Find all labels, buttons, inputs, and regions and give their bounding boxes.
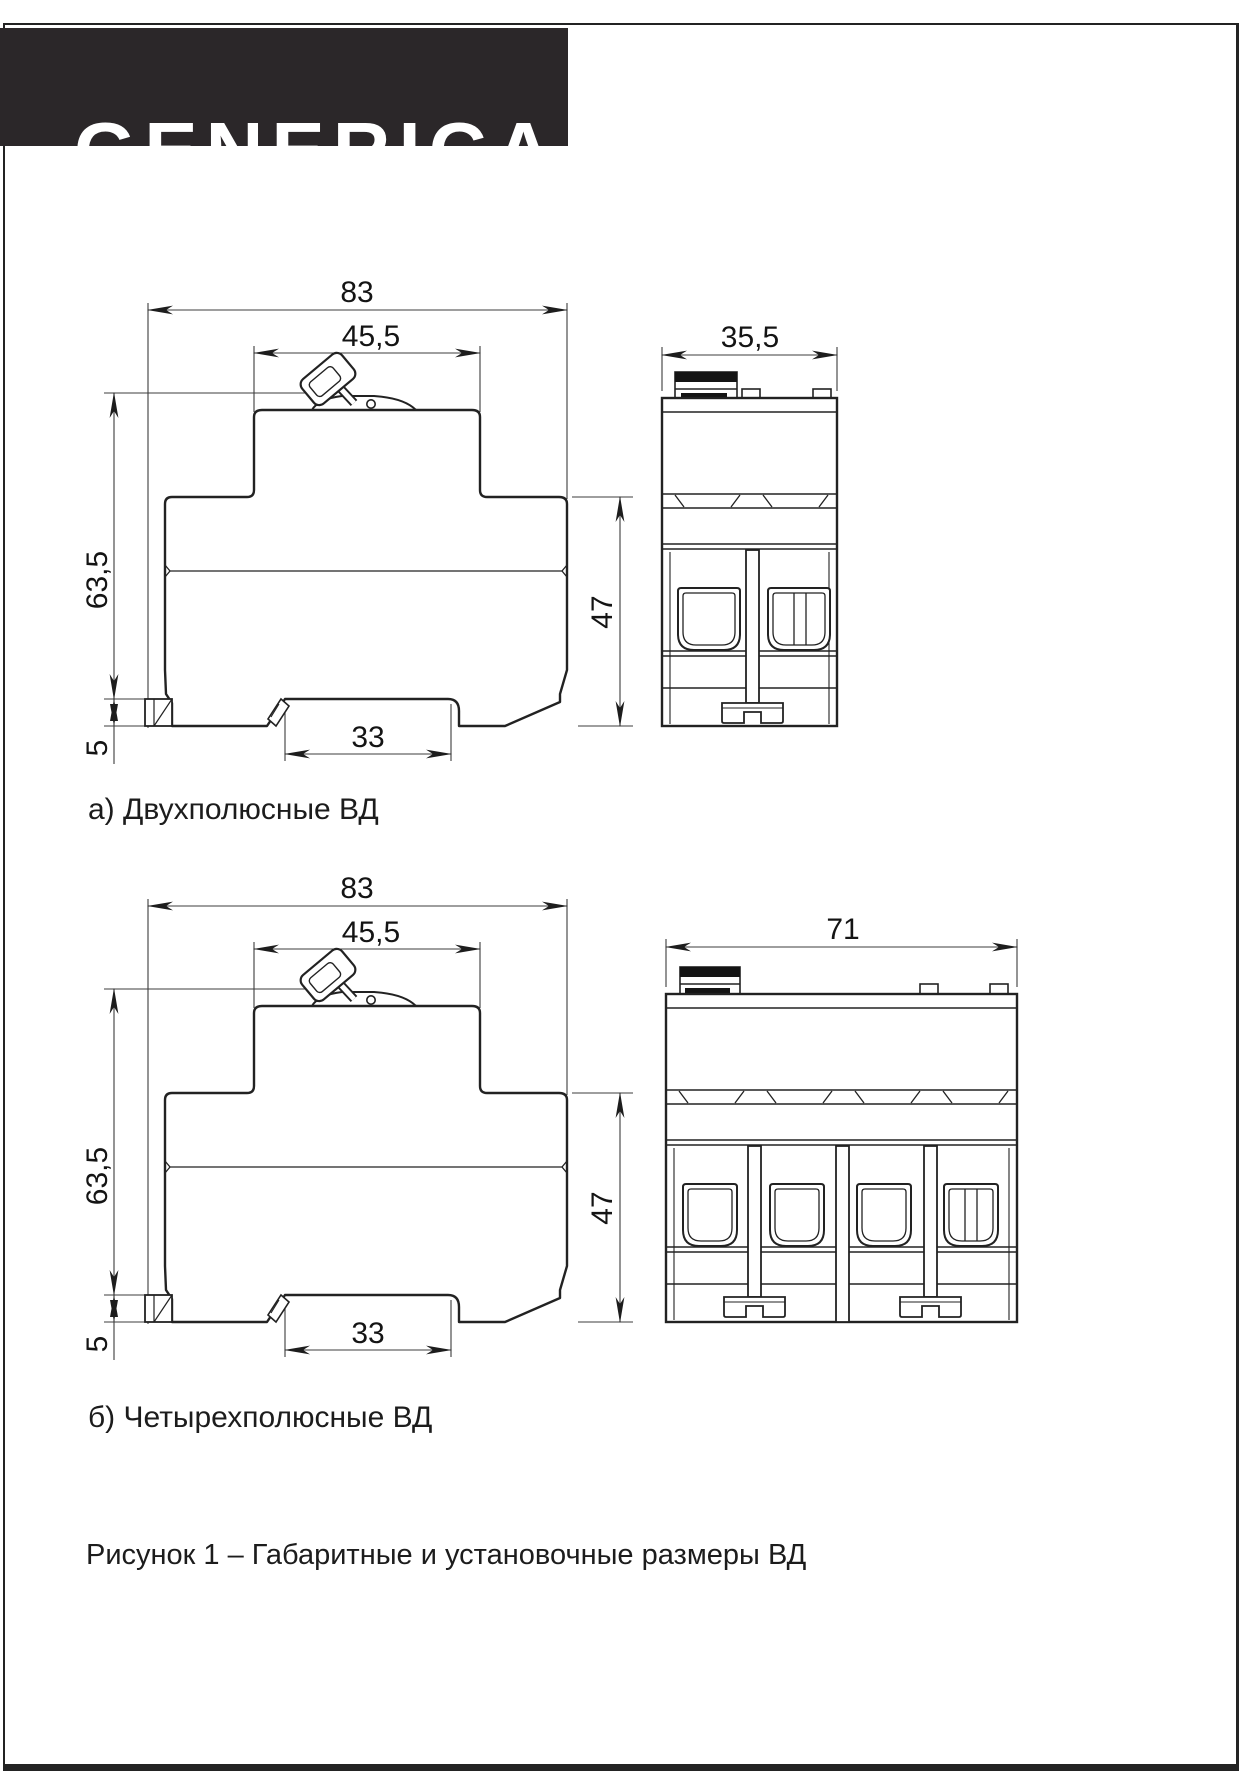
four-pole-side-view: 83 45,5 63,5 47 5 33 [81,872,633,1360]
dimension-drawings: 83 45,5 63,5 47 5 33 35,5 [0,0,1244,1778]
dim-b-top-width: 45,5 [342,916,400,949]
dim-b-rail-height: 5 [81,1336,114,1353]
dim-a-top-width: 45,5 [342,320,400,353]
dim-b-front-width: 71 [826,913,859,946]
dim-a-rail-recess: 33 [351,721,384,754]
dim-a-rail-height: 5 [81,740,114,757]
dim-b-total-width: 83 [340,872,373,905]
two-pole-front-view: 35,5 [662,321,837,726]
dim-a-total-width: 83 [340,276,373,309]
four-pole-front-view: 71 [666,913,1017,1322]
dim-a-front-width: 35,5 [721,321,779,354]
figure-caption: Рисунок 1 – Габаритные и установочные ра… [86,1538,806,1573]
caption-two-pole: а) Двухполюсные ВД [88,792,379,828]
dim-a-body-height: 47 [586,595,619,628]
two-pole-side-view: 83 45,5 63,5 47 5 33 [81,276,633,764]
datasheet-page: GENERICA [0,0,1244,1778]
caption-four-pole: б) Четырехполюсные ВД [88,1400,432,1436]
dim-b-body-height: 47 [586,1191,619,1224]
dim-b-rail-recess: 33 [351,1317,384,1350]
dim-b-height: 63,5 [81,1147,114,1205]
dim-a-height: 63,5 [81,551,114,609]
